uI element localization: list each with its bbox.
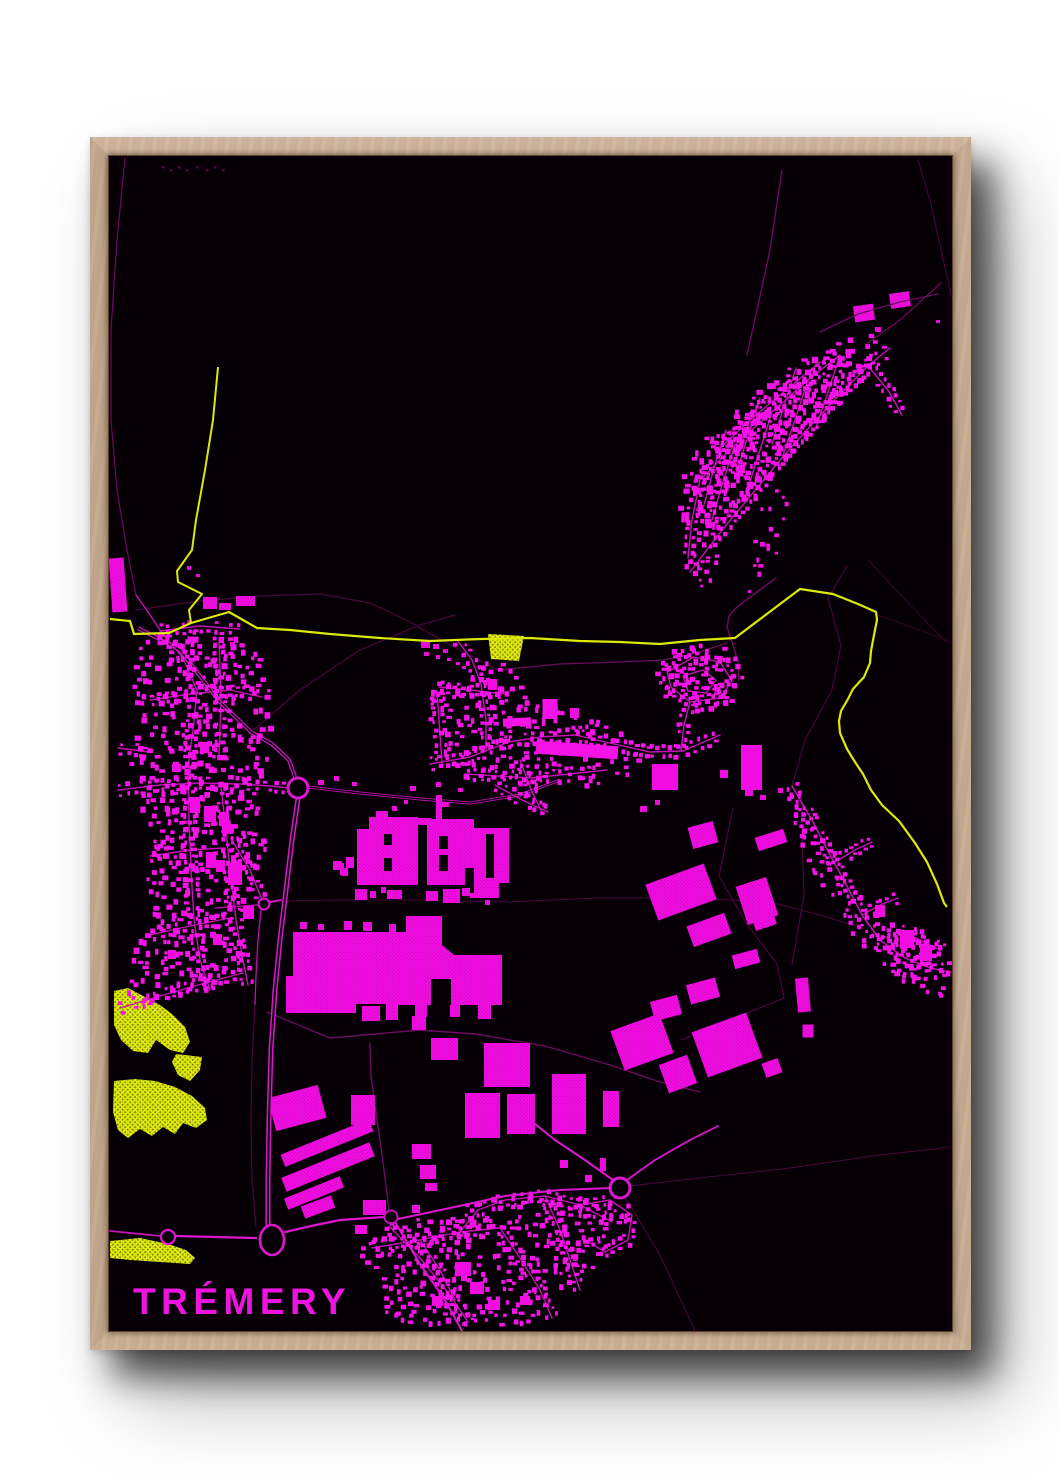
svg-text:TRÉMERY: TRÉMERY (133, 1281, 351, 1322)
